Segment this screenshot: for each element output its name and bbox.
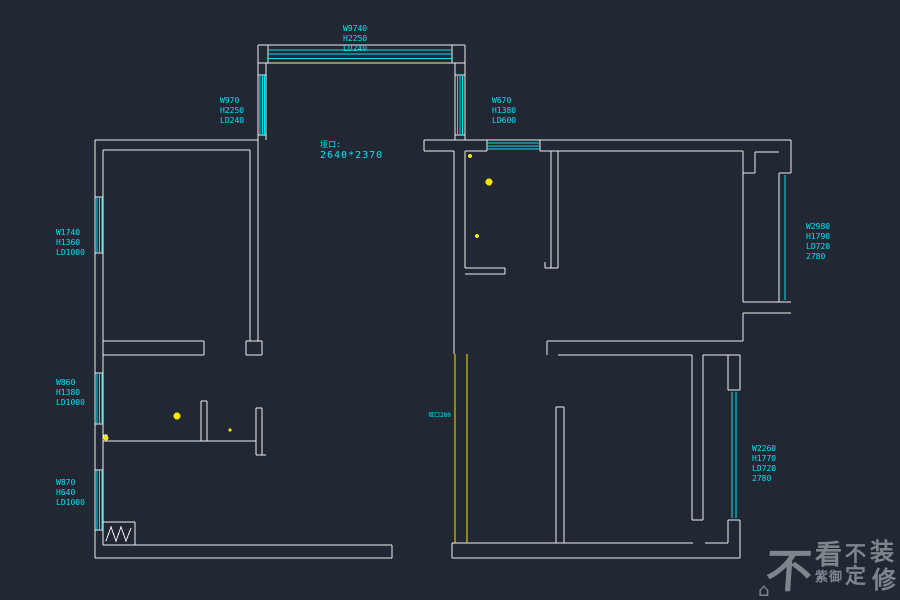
label-line: LD720 (806, 242, 830, 252)
wall-note-label: 垭口280 (428, 412, 451, 419)
window-label-right-upper: W2980 H1790 LD720 2780 (806, 222, 830, 262)
watermark-logo: 不 看 紫御 不 定 装 修 ⌂ (760, 538, 900, 600)
window-label-right-lower: W2260 H1770 LD720 2780 (752, 444, 776, 484)
opening-title: 垭口: (320, 140, 383, 150)
watermark-char: 看 (815, 542, 842, 569)
appliance-symbol (106, 527, 131, 541)
label-line: H640 (56, 488, 85, 498)
house-icon: ⌂ (758, 582, 769, 600)
watermark-char: 修 (872, 568, 896, 592)
window-label-left-lower: W870 H640 LD1000 (56, 478, 85, 508)
opening-size: 2640*2370 (320, 150, 383, 161)
label-line: H1380 (56, 388, 85, 398)
window-hatch-lines (97, 50, 785, 530)
label-line: W970 (220, 96, 244, 106)
label-line: H2250 (343, 34, 367, 44)
opening-dimension-label: 垭口: 2640*2370 (320, 140, 383, 161)
window-label-top-right: W670 H1380 LD600 (492, 96, 516, 126)
label-line: W1740 (56, 228, 85, 238)
label-line: W670 (492, 96, 516, 106)
label-line: W2980 (806, 222, 830, 232)
watermark-char: 装 (870, 540, 894, 564)
label-line: H2250 (220, 106, 244, 116)
wall-lines (95, 45, 791, 558)
label-line: LD600 (492, 116, 516, 126)
label-line: LD1000 (56, 248, 85, 258)
window-label-left-upper: W1740 H1360 LD1000 (56, 228, 85, 258)
window-label-bay-left: W970 H2250 LD240 (220, 96, 244, 126)
label-line: LD1000 (56, 498, 85, 508)
label-line: W2260 (752, 444, 776, 454)
window-label-left-middle: W860 H1380 LD1000 (56, 378, 85, 408)
label-line: H1380 (492, 106, 516, 116)
window-label-top: W9740 H2250 LD240 (343, 24, 367, 54)
label-line: LD1000 (56, 398, 85, 408)
watermark-char: 定 (845, 566, 866, 587)
label-line: W9740 (343, 24, 367, 34)
floorplan-walls (0, 0, 900, 600)
label-line: LD720 (752, 464, 776, 474)
label-line: H1360 (56, 238, 85, 248)
watermark-char: 不 (845, 544, 866, 565)
label-line: W860 (56, 378, 85, 388)
watermark-brand: 紫御 (815, 571, 843, 584)
cad-drawing-canvas[interactable]: W9740 H2250 LD240 W970 H2250 LD240 W670 … (0, 0, 900, 600)
label-line: H1770 (752, 454, 776, 464)
label-line: 2780 (752, 474, 776, 484)
fixture-marks (104, 154, 493, 441)
label-line: 2780 (806, 252, 830, 262)
label-line: H1790 (806, 232, 830, 242)
highlight-wall-lines (455, 354, 467, 543)
label-line: W870 (56, 478, 85, 488)
label-line: LD240 (343, 44, 367, 54)
label-line: LD240 (220, 116, 244, 126)
watermark-char: 不 (764, 548, 813, 594)
